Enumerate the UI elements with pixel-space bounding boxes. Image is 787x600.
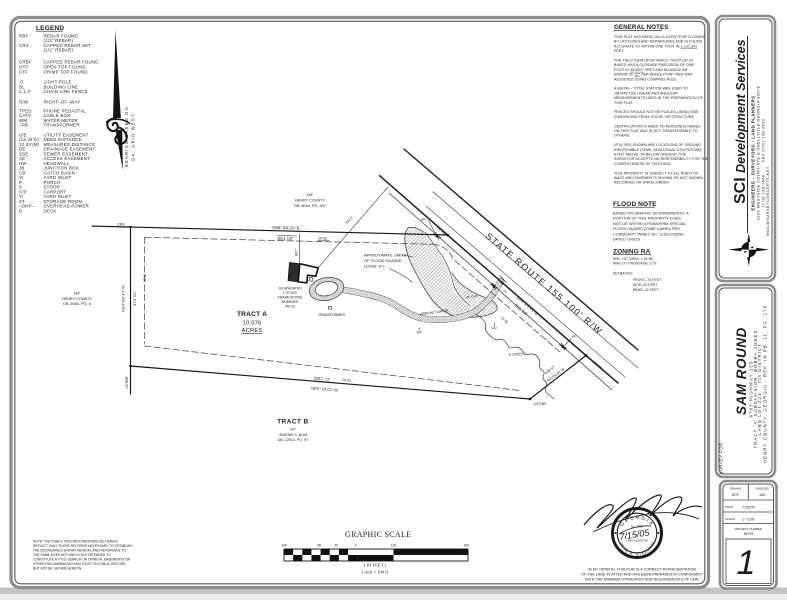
svg-text:MIN. LOT AREA: 1 ACRE: MIN. LOT AREA: 1 ACRE: [613, 257, 654, 261]
svg-text:N/F: N/F: [307, 193, 314, 197]
svg-text:1"=100': 1"=100': [742, 518, 755, 522]
svg-text:CRS: CRS: [117, 222, 125, 226]
svg-text:N/F: N/F: [74, 292, 81, 296]
svg-text:1/2"RBF: 1/2"RBF: [534, 402, 547, 406]
svg-text:FOOT IN 10,000+ FEET AND: FOOT IN 10,000+ FEET AND AN ANGULAR: [614, 68, 688, 72]
svg-text:GA. GRID WEST: GA. GRID WEST: [131, 113, 136, 161]
svg-text:50: 50: [317, 544, 321, 548]
svg-text:2920 WESTSIDE COURT-STE E-S: 2920 WESTSIDE COURT-STE E-SNELLVILLE GEO…: [757, 86, 761, 220]
svg-text:□PB: □PB: [19, 122, 28, 127]
svg-text:ACRES: ACRES: [242, 328, 263, 334]
svg-text:DB. 6065, PG. 6: DB. 6065, PG. 6: [63, 302, 91, 306]
svg-text:THE FIELD DATA UPON WHICH: THE FIELD DATA UPON WHICH THIS PLAT IS: [614, 59, 693, 63]
svg-text:THIS PLAT.: THIS PLAT.: [614, 101, 633, 105]
svg-text:TRACT B: TRACT B: [277, 419, 309, 426]
svg-text:20' BL: 20' BL: [342, 378, 352, 383]
svg-text:(1/2" REBAR): (1/2" REBAR): [44, 48, 74, 53]
svg-text:100: 100: [391, 544, 397, 548]
svg-text:RBF: RBF: [19, 34, 29, 39]
svg-text:#6733: #6733: [285, 305, 295, 309]
svg-text:OF FLOOD HAZARD: OF FLOOD HAZARD: [364, 258, 402, 263]
svg-text:DB. 12514, PG. 97: DB. 12514, PG. 97: [278, 438, 308, 442]
svg-text:HENRY COUNTY, GEORGIA REF.: HENRY COUNTY, GEORGIA REF. IN PB. 11, PG…: [763, 305, 768, 463]
svg-text:BASED HAS A CLOSURE PRECIS: BASED HAS A CLOSURE PRECISION OF ONE: [614, 63, 695, 67]
svg-text:COMMUNITY PANEL NO. 13151C0: COMMUNITY PANEL NO. 13151C0085D: [613, 232, 684, 236]
svg-text:FLOOD HAZARD [ZONE A]AREA: FLOOD HAZARD [ZONE A]AREA PER: [613, 227, 680, 231]
svg-text:DB. 6064, PG. 347: DB. 6064, PG. 347: [294, 204, 326, 208]
svg-text:HENRY COUNTY: HENRY COUNTY: [62, 297, 93, 301]
svg-text:IDENTIFIABLE ITEMS. ADDITION: IDENTIFIABLE ITEMS. ADDITIONAL UTILITES …: [614, 148, 702, 152]
svg-text:(770) 736-7668 FAX (7: (770) 736-7668 FAX (770) 736-4623: [761, 119, 765, 208]
svg-text:SURVEY FOR: SURVEY FOR: [719, 442, 724, 474]
svg-text:86.7': 86.7': [294, 248, 298, 256]
svg-text:CHECKED: CHECKED: [755, 487, 769, 491]
svg-text:373.00': 373.00': [132, 291, 137, 306]
svg-text:UTILITIES SHOWN ARE LOCATIO: UTILITIES SHOWN ARE LOCATIONS OF GROUND: [614, 143, 701, 147]
svg-text:861.00': 861.00': [277, 236, 293, 241]
svg-text:20' BL: 20' BL: [143, 273, 147, 282]
svg-text:BUT NOT BE SHOWN HEREON.: BUT NOT BE SHOWN HEREON.: [33, 567, 82, 571]
svg-text:ERROR OF 02" PER ANGLE PO: ERROR OF 02" PER ANGLE POINT AND WAS: [614, 73, 693, 77]
svg-text:JUMOKE K. ALIM: JUMOKE K. ALIM: [279, 433, 308, 437]
svg-text:SETBACKS:: SETBACKS:: [613, 272, 633, 276]
svg-text:100: 100: [281, 544, 287, 548]
svg-text:TRANSFORMER: TRANSFORMER: [44, 122, 80, 127]
svg-text:N/F: N/F: [290, 428, 295, 432]
svg-text:SAM ROUND: SAM ROUND: [734, 327, 749, 415]
svg-text:THE SAME DOES NOT AND IS: THE SAME DOES NOT AND IS NOT INTENDED TO: [33, 553, 111, 557]
svg-text:BY LATITUDES AND DEPARTURES: BY LATITUDES AND DEPARTURES AND IS FOUND: [614, 40, 703, 44]
svg-text:DCP: DCP: [732, 493, 740, 497]
svg-text:TRACT A: TRACT A: [237, 311, 267, 318]
svg-text:SCALE: SCALE: [725, 517, 735, 521]
svg-text:MEASUREMENTS USED IN THE P: MEASUREMENTS USED IN THE PREPARATION OF: [614, 96, 704, 100]
svg-text:DATE: DATE: [725, 505, 733, 509]
svg-text:ADJUSTED USING COMPASS RULE: ADJUSTED USING COMPASS RULE.: [614, 77, 678, 81]
svg-text:DIMENSIONS FROM HOUSE OR S: DIMENSIONS FROM HOUSE OR STRUCTURE.: [614, 115, 695, 119]
svg-text:DATED 10/9/16.: DATED 10/9/16.: [613, 238, 641, 242]
svg-text:THE BOUNDARIES SHOWN HEREON: THE BOUNDARIES SHOWN HEREON, AND REFEREN…: [33, 549, 127, 553]
svg-text:ENGINEERS - SURVEYORS - LA: ENGINEERS - SURVEYORS - LAND PLANNERS: [751, 95, 756, 210]
svg-text:CONSTITUTE A TITLE SEARCH: CONSTITUTE A TITLE SEARCH OR OPINION. EA…: [33, 558, 131, 562]
svg-text:NOTE: THE PUBLIC RECORDS R: NOTE: THE PUBLIC RECORDS REFERENCED HERE…: [33, 540, 118, 544]
svg-text:(ZONE "A"): (ZONE "A"): [364, 264, 385, 269]
svg-text:( IN FEET ): ( IN FEET ): [364, 563, 387, 568]
svg-text:7/15/05: 7/15/05: [742, 506, 755, 510]
svg-text:20' BL: 20' BL: [318, 237, 328, 241]
svg-text:GRAPHIC SCALE: GRAPHIC SCALE: [345, 530, 411, 539]
svg-text:COMPLETENESS OF THIS DATA.: COMPLETENESS OF THIS DATA.: [614, 162, 672, 166]
svg-text:DRAWN: DRAWN: [730, 487, 740, 491]
svg-text:BK/BSMNT: BK/BSMNT: [281, 300, 298, 304]
svg-text:TRANSFORMER: TRANSFORMER: [318, 313, 346, 317]
svg-text:FRONT–75 FEET: FRONT–75 FEET: [633, 278, 661, 282]
svg-text:C.L.F: C.L.F: [19, 89, 31, 94]
svg-text:IN MY OPINION, THIS PLAT: IN MY OPINION, THIS PLAT IS A CORRECT RE…: [588, 568, 696, 572]
svg-text:BEARING BASED ON: BEARING BASED ON: [124, 106, 129, 167]
svg-text:OTHER ENCUMBRANCES MAY EXIS: OTHER ENCUMBRANCES MAY EXIST ON PUBLIC R…: [33, 562, 126, 566]
svg-text:WITH THE MINIMUM STANDARDS: WITH THE MINIMUM STANDARDS AND REQUIREME…: [585, 577, 699, 581]
svg-text:JAS: JAS: [759, 493, 766, 497]
svg-text:10.076: 10.076: [243, 321, 262, 327]
svg-text:SCI Development Services: SCI Development Services: [732, 39, 749, 204]
svg-text:D: D: [19, 209, 22, 214]
svg-text:RIGHT–OF–WAY: RIGHT–OF–WAY: [44, 99, 81, 104]
svg-text:CERTIFICATION IS MADE TO P: CERTIFICATION IS MADE TO PERSON(S) NAMED: [614, 124, 701, 128]
svg-text:OBTAIN THE LINEAR AND ANGU: OBTAIN THE LINEAR AND ANGULAR: [614, 91, 678, 95]
svg-text:CTF: CTF: [19, 69, 28, 74]
svg-text:CHAIN LINK FENCE: CHAIN LINK FENCE: [44, 89, 88, 94]
svg-text:RECORDED OR UNRECORDED: RECORDED OR UNRECORDED: [614, 181, 670, 185]
svg-text:300: 300: [464, 544, 470, 548]
svg-text:APPROXIMATE LIMITS: APPROXIMATE LIMITS: [364, 253, 407, 258]
svg-text:FEET.: FEET.: [614, 49, 624, 53]
svg-text:1: 1: [737, 544, 756, 582]
svg-text:S88°48'29"E: S88°48'29"E: [272, 225, 300, 231]
svg-text:OTHERS.: OTHERS.: [614, 134, 630, 138]
svg-text:LAND LOT 223 7th DISTRIC: LAND LOT 223 7th DISTRICT: [757, 343, 762, 435]
svg-text:N03°08'47"W: N03°08'47"W: [120, 285, 125, 312]
svg-text:0: 0: [355, 544, 357, 548]
svg-text:CRIMP TOP FOUND: CRIMP TOP FOUND: [44, 69, 88, 74]
svg-text:ACCURATE TO WITHIN ONE FOO: ACCURATE TO WITHIN ONE FOOT IN 1,131,341: [614, 44, 697, 48]
svg-text:FENCES SHOULD NOT BE PLACE: FENCES SHOULD NOT BE PLACED USING SIDE: [614, 110, 699, 114]
svg-text:1/2"RBF: 1/2"RBF: [125, 376, 129, 389]
svg-text:FRAME/STONE: FRAME/STONE: [278, 296, 303, 300]
svg-text:WAYS AND EASEMENTS SHOWN O: WAYS AND EASEMENTS SHOWN OR NOT SHOWN,: [614, 176, 704, 180]
svg-text:DILAPADATED: DILAPADATED: [278, 287, 302, 291]
svg-text:OF THE LAND PLATTED AND H: OF THE LAND PLATTED AND HAS BEEN PREPARE…: [581, 572, 703, 576]
svg-text:EXIST ABOVE OR BELOW GROUN: EXIST ABOVE OR BELOW GROUND. THE: [614, 153, 687, 157]
svg-text:BASED ON GRAPHIC DETERMINAT: BASED ON GRAPHIC DETERMINATION, A: [613, 212, 689, 216]
svg-text:MIN LOT FRONTAGE: 175': MIN LOT FRONTAGE: 175': [613, 262, 657, 266]
svg-text:R/W: R/W: [19, 99, 29, 104]
svg-text:1 inch = 100 ft.: 1 inch = 100 ft.: [361, 570, 389, 575]
svg-text:SIDE–20 FEET: SIDE–20 FEET: [633, 283, 657, 287]
svg-text:CRS: CRS: [19, 43, 29, 48]
svg-text:56754: 56754: [744, 532, 754, 536]
svg-text:1 STORY: 1 STORY: [283, 291, 298, 295]
svg-text:THIS PROPERTY IS SUBJECT T: THIS PROPERTY IS SUBJECT TO ALL RIGHT OF: [614, 171, 699, 175]
svg-text:WV: WV: [492, 327, 498, 331]
svg-text:PROJECT NUMBER: PROJECT NUMBER: [735, 527, 762, 531]
svg-text:MAIL@SURVEYCONCEPTS.NET: MAIL@SURVEYCONCEPTS.NET: [766, 166, 770, 236]
svg-text:NOT LIE WITHIN A FEMA/FIRM: NOT LIE WITHIN A FEMA/FIRM SPECIAL: [613, 222, 686, 226]
svg-text:A NIKON – TOTAL STATION W: A NIKON – TOTAL STATION WAS USED TO: [614, 87, 688, 91]
svg-text:REFLECT ONLY THOSE RECORDS: REFLECT ONLY THOSE RECORDS NECESSARY TO …: [33, 544, 133, 548]
svg-text:HENRY COUNTY: HENRY COUNTY: [295, 199, 326, 203]
svg-text:25: 25: [334, 544, 338, 548]
svg-text:DECK: DECK: [44, 209, 57, 214]
svg-text:WV: WV: [417, 331, 423, 335]
svg-text:PORTION OF THIS PROPERTY D: PORTION OF THIS PROPERTY DOES: [613, 217, 681, 221]
svg-text:ON THIS PLAT AND IS NOT: ON THIS PLAT AND IS NOT TRANSFERABLE TO: [614, 129, 698, 133]
svg-text:SURVEYOR ACCEPTS NO RESPONS: SURVEYOR ACCEPTS NO RESPONSIBILITY FOR T…: [614, 157, 709, 161]
svg-text:REAR–40 FEET: REAR–40 FEET: [633, 288, 659, 292]
svg-text:THIS PLAT HAS BEEN CALCULA: THIS PLAT HAS BEEN CALCULATED FOR CLOSUR…: [614, 35, 706, 39]
